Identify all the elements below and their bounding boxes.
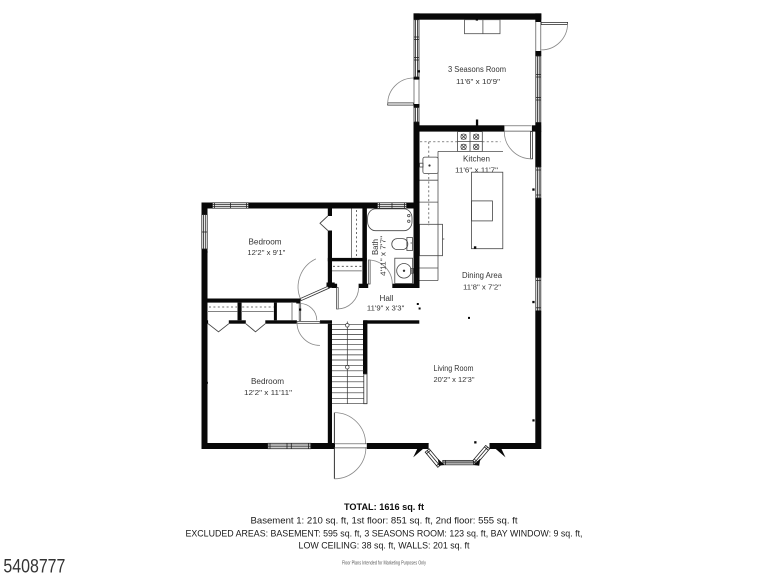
svg-text:12'2" x 11'11": 12'2" x 11'11"	[244, 388, 292, 397]
svg-text:Hall: Hall	[380, 294, 394, 303]
svg-text:Dining Area: Dining Area	[462, 271, 503, 280]
svg-text:Floor Plans Intended for Marke: Floor Plans Intended for Marketing Purpo…	[342, 561, 426, 567]
svg-text:Bedroom: Bedroom	[249, 237, 282, 246]
svg-text:EXCLUDED AREAS: BASEMENT: 595: EXCLUDED AREAS: BASEMENT: 595 sq. ft, 3 …	[186, 528, 583, 539]
svg-text:Basement 1: 210 sq. ft, 1st fl: Basement 1: 210 sq. ft, 1st floor: 851 s…	[251, 516, 518, 527]
svg-text:11'6" x 11'7": 11'6" x 11'7"	[455, 165, 498, 174]
svg-text:11'9" x 3'3": 11'9" x 3'3"	[367, 303, 405, 312]
svg-text:11'6" x 10'9": 11'6" x 10'9"	[456, 77, 500, 86]
svg-text:5408777: 5408777	[3, 555, 65, 576]
svg-text:4'11" x 7'7": 4'11" x 7'7"	[379, 236, 388, 276]
svg-text:Living Room: Living Room	[434, 364, 474, 373]
svg-text:TOTAL: 1616 sq. ft: TOTAL: 1616 sq. ft	[344, 502, 425, 513]
svg-text:Bedroom: Bedroom	[251, 377, 284, 386]
svg-text:LOW CEILING: 38 sq. ft, WALLS:: LOW CEILING: 38 sq. ft, WALLS: 201 sq. f…	[299, 541, 470, 552]
svg-text:Kitchen: Kitchen	[463, 154, 490, 163]
svg-text:12'2" x 9'1": 12'2" x 9'1"	[247, 248, 285, 257]
svg-text:11'8" x 7'2": 11'8" x 7'2"	[463, 282, 501, 291]
svg-text:3 Seasons Room: 3 Seasons Room	[448, 65, 506, 74]
svg-text:20'2" x 12'3": 20'2" x 12'3"	[434, 375, 475, 384]
